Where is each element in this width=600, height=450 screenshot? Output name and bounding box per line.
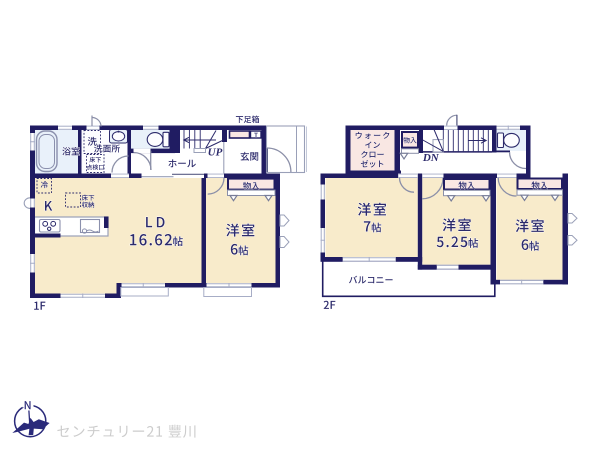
svg-text:UP: UP bbox=[208, 147, 223, 159]
svg-text:DN: DN bbox=[422, 152, 440, 164]
